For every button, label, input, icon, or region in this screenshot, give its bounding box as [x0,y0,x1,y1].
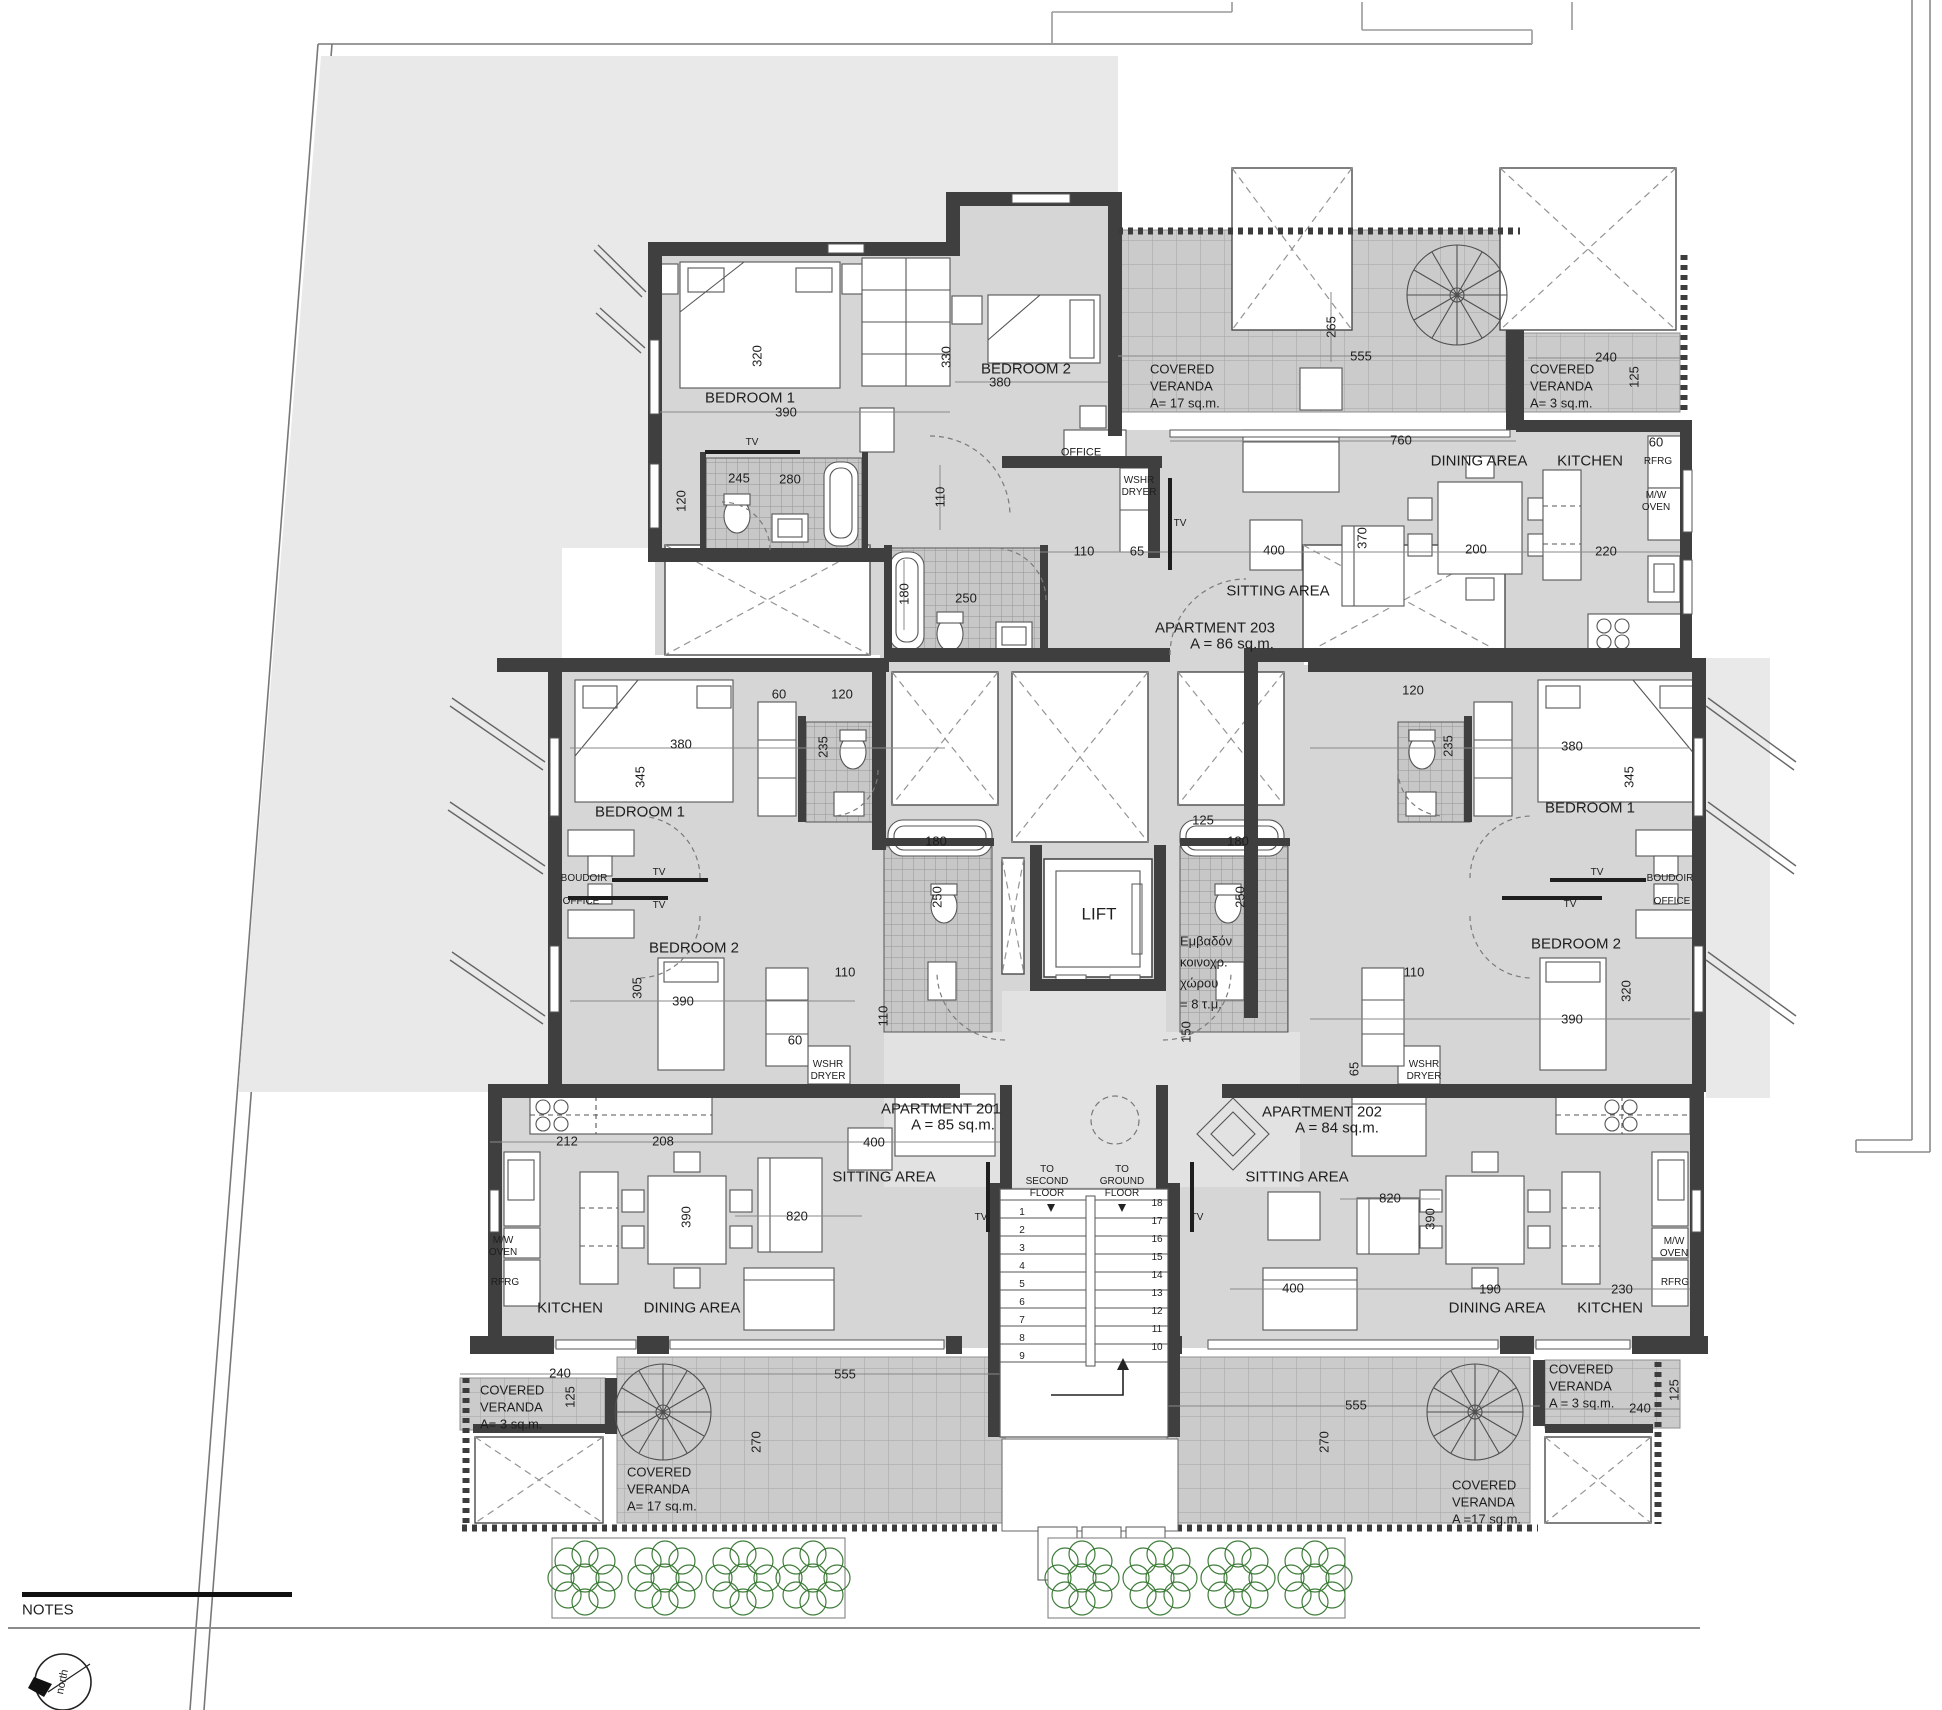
notes-rule [22,1592,292,1597]
bed-double-201 [575,680,733,802]
toilet [840,730,866,769]
washer-dryer-201 [808,1046,850,1084]
toilet [724,494,750,533]
closet2-201 [766,968,808,1066]
closet-201 [758,702,796,816]
north-arrow [28,1654,91,1710]
bed-double-203 [656,262,868,388]
toilet [1215,884,1241,923]
lift [1044,859,1152,983]
closet-202 [1474,702,1512,816]
bed-double-202 [1538,680,1696,802]
floor-plan-drawing [0,0,1942,1710]
bed-single-202 [1540,958,1606,1070]
toilet [937,612,963,651]
toilet [931,884,957,923]
closet2-202 [1362,968,1404,1066]
bed-single-201 [658,958,724,1070]
floor-plan-canvas: BEDROOM 1390320BEDROOM 2380330OFFICETV24… [0,0,1942,1710]
toilet [1409,730,1435,769]
